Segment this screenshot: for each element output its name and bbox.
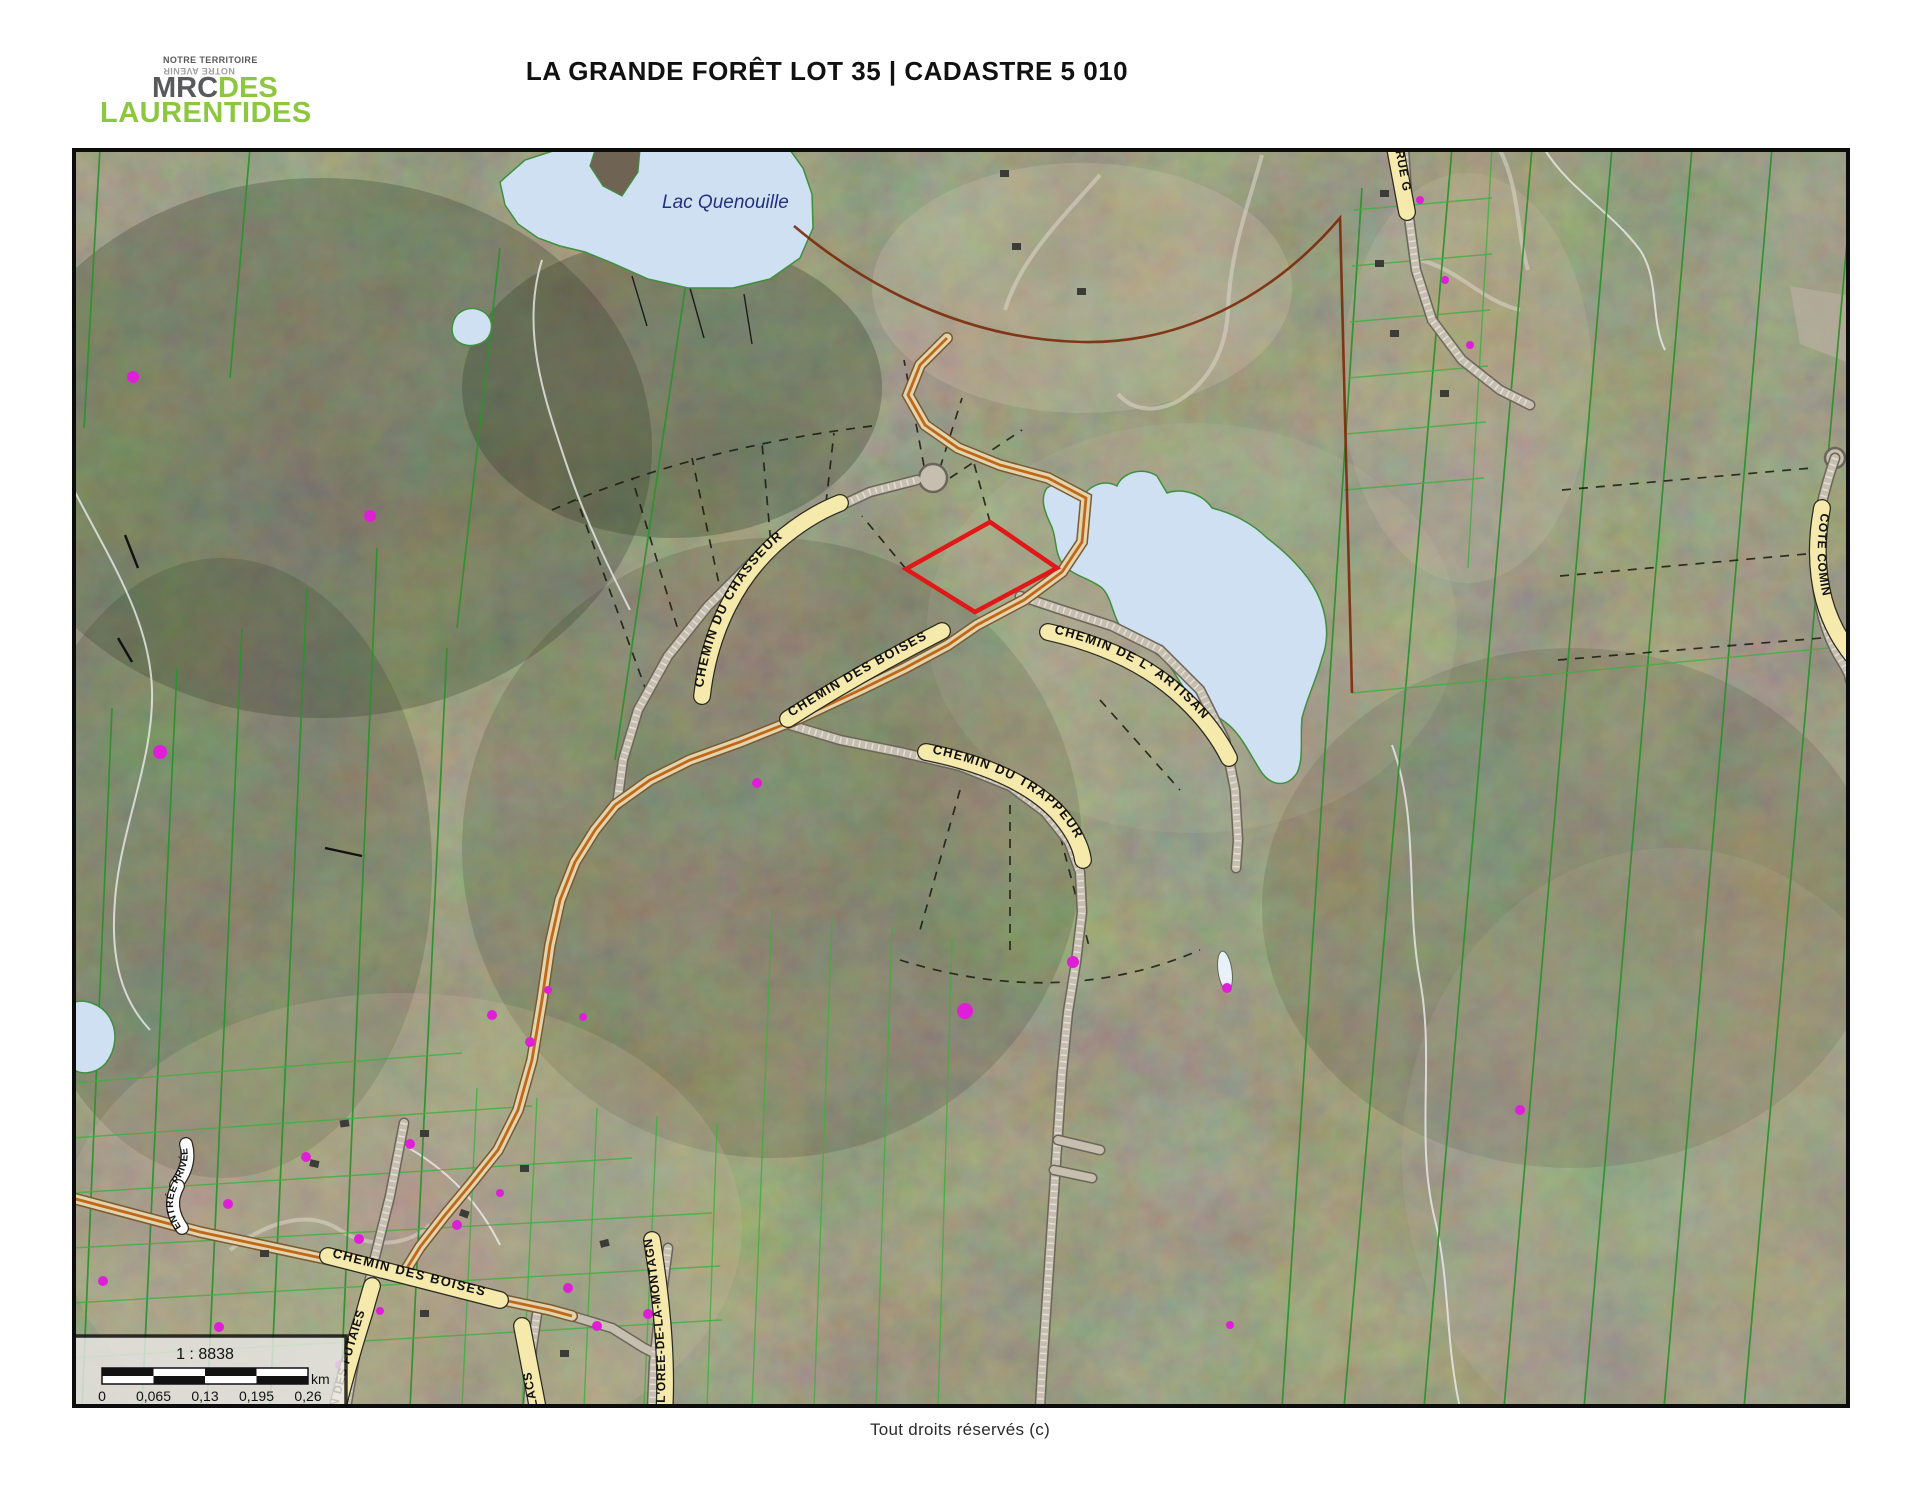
scale-tick-1: 0,065 [136, 1388, 171, 1404]
scale-ratio: 1 : 8838 [176, 1346, 234, 1363]
lake-label: Lac Quenouille [662, 192, 789, 213]
page: NOTRE TERRITOIRE NOTRE AVENIR MRCDES LAU… [0, 0, 1920, 1486]
scale-tick-4: 0,26 [294, 1388, 321, 1404]
scale-tick-2: 0,13 [191, 1388, 218, 1404]
scale-unit: km [311, 1371, 330, 1387]
copyright-note: Tout droits réservés (c) [0, 1420, 1920, 1440]
page-title: LA GRANDE FORÊT LOT 35 | CADASTRE 5 010 [526, 56, 1128, 87]
pond-small [452, 308, 491, 345]
mrc-laurentides-logo: NOTRE TERRITOIRE NOTRE AVENIR MRCDES LAU… [0, 0, 340, 140]
scale-bar-blocks [102, 1368, 308, 1384]
logo-laurentides: LAURENTIDES [100, 97, 312, 130]
map-canvas: CHEMIN DU CHASSEUR CHEMIN DES BOISES CHE… [72, 148, 1850, 1408]
map[interactable]: CHEMIN DU CHASSEUR CHEMIN DES BOISES CHE… [72, 148, 1850, 1408]
aerial-terrain [72, 148, 1850, 1408]
scale-tick-0: 0 [98, 1388, 106, 1404]
scale-bar: 1 : 8838 km 0 0,065 0,13 0,195 0,26 [72, 1336, 346, 1406]
scale-tick-3: 0,195 [239, 1388, 274, 1404]
logo-tagline: NOTRE TERRITOIRE [163, 55, 258, 65]
